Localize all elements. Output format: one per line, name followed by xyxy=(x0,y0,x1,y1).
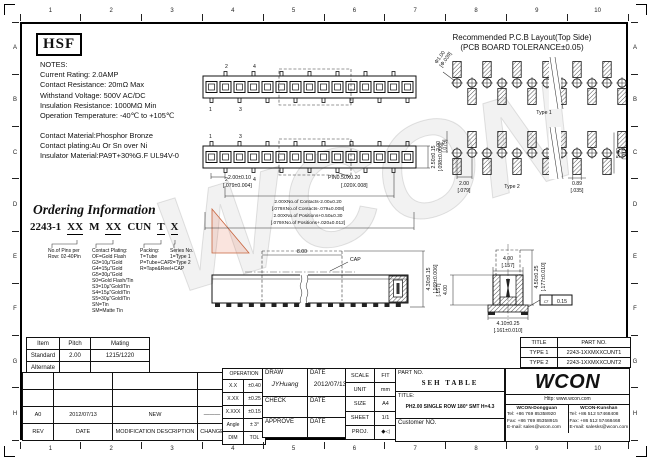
material-line: Contact plating:Au Or Sn over Ni xyxy=(40,141,179,151)
dim-contacts-inch: [.079XNo.of Contacts-.079±0.008] xyxy=(272,206,345,212)
smt-pad xyxy=(573,159,581,175)
legend-pins: No.of Pins perRow: 02-40Pin xyxy=(48,248,81,260)
code-packing: T xyxy=(157,221,164,235)
cell: X.XXX xyxy=(223,406,244,419)
pcb-layout-title: Recommended P.C.B Layout(Top Side) xyxy=(412,33,632,43)
smt-foot xyxy=(294,303,299,307)
dim-end-width-inch: [.157] xyxy=(502,263,516,269)
type1-label: Type 1 xyxy=(536,110,552,116)
ruler-tick xyxy=(202,14,203,21)
ruler-tick xyxy=(628,442,629,449)
legend-plating: Contact Plating:OF=Gold FlashG3=10µ"Gold… xyxy=(92,248,133,314)
ruler-col-label: 4 xyxy=(202,446,263,452)
ruler-col-label: 8 xyxy=(446,446,507,452)
approve-label: APPROVE xyxy=(263,418,308,438)
ruler-tick xyxy=(631,335,638,336)
corner-mark xyxy=(636,446,647,457)
smt-pad xyxy=(588,132,596,148)
dim-side-height: 4.30±0.15 xyxy=(426,267,432,290)
solder-pin xyxy=(238,142,241,147)
contact xyxy=(234,152,245,163)
signature-block: DRAW JYHuang DATE 2012/07/13 CHECK DATE … xyxy=(262,368,353,438)
contact xyxy=(402,82,413,93)
ruler-tick xyxy=(12,178,19,179)
dim-hpitch-inch: [.079] xyxy=(458,188,472,194)
ruler-row-label: D xyxy=(11,179,19,231)
ordering-legend-line: SM=Matte Tin xyxy=(92,308,133,314)
ruler-col-label: 2 xyxy=(81,446,142,452)
dim-pitch-inch: [.079±0.004] xyxy=(223,183,252,189)
smt-pad xyxy=(588,89,596,105)
ruler-tick xyxy=(567,14,568,21)
ruler-col-label: 4 xyxy=(202,8,263,14)
smt-pad xyxy=(498,89,506,105)
solder-pin xyxy=(252,72,255,77)
cell: PROJ. xyxy=(346,425,375,439)
code-m: M xyxy=(89,221,99,235)
solder-pin xyxy=(210,142,213,147)
ruler-row-label: B xyxy=(631,74,639,126)
contact xyxy=(248,152,259,163)
contact xyxy=(304,152,315,163)
pin-label: 3 xyxy=(239,107,242,113)
contact xyxy=(304,82,315,93)
ruler-tick xyxy=(12,335,19,336)
flatness-value: 0.15 xyxy=(557,299,567,305)
contact xyxy=(388,152,399,163)
smt-pad xyxy=(483,62,491,78)
cell: mm xyxy=(375,383,397,397)
ruler-row-label: G xyxy=(11,336,19,388)
ruler-row-label: H xyxy=(11,388,19,440)
ruler-col-label: 5 xyxy=(263,8,324,14)
contact xyxy=(220,152,231,163)
dim-vpitch-inch: [.079] xyxy=(443,139,449,153)
contact xyxy=(276,82,287,93)
revision-table: A0 2012/07/13 NEW ——— REV DATE MODIFICAT… xyxy=(22,372,227,441)
contact xyxy=(276,152,287,163)
ruler-row-label: A xyxy=(631,22,639,74)
dim-positions: 2.00XNo.of Positions+0.50±0.30 xyxy=(274,213,343,219)
smt-foot xyxy=(339,303,344,307)
ruler-tick xyxy=(324,14,325,21)
contact xyxy=(346,82,357,93)
contact xyxy=(402,152,413,163)
ordering-legend-line: R=Tape&Reel+CAP xyxy=(140,266,184,272)
ruler-tick xyxy=(631,74,638,75)
ruler-col-label: 5 xyxy=(263,446,324,452)
material-line: Contact Material:Phosphor Bronze xyxy=(40,131,179,141)
smt-foot xyxy=(396,303,401,307)
cell: A4 xyxy=(375,397,397,411)
rev-desc: NEW xyxy=(113,407,198,424)
contact xyxy=(388,82,399,93)
ruler-row-label: C xyxy=(631,127,639,179)
contact xyxy=(374,152,385,163)
dim-pin-size-inch: [.020X.008] xyxy=(341,183,368,189)
solder-pin xyxy=(308,72,311,77)
contact xyxy=(332,82,343,93)
cell: DIM xyxy=(223,432,244,445)
dim-body-height: 4.00 xyxy=(443,285,449,295)
dim-end-width: 4.00 xyxy=(503,256,513,262)
cell: 1/1 xyxy=(375,411,397,425)
cell: 1215/1220 xyxy=(91,350,150,362)
smt-foot xyxy=(215,303,220,307)
table-row: TYPE 1 2243-1XXMXXCUNT1 xyxy=(521,348,631,358)
table-row: Standard 2.00 1215/1220 xyxy=(27,350,150,362)
ruler-col-label: 1 xyxy=(20,8,81,14)
dim-end-height-inch: [.177±0.010] xyxy=(541,262,547,291)
ruler-col-label: 7 xyxy=(385,446,446,452)
notes-block: NOTES: Current Rating: 2.0AMPContact Res… xyxy=(40,60,174,121)
smt-foot xyxy=(249,303,254,307)
company-url: Http: www.wcon.com xyxy=(506,394,629,405)
ruler-tick xyxy=(384,14,385,21)
col-header: REV xyxy=(23,424,54,441)
cell: X.X xyxy=(223,380,244,393)
smt-pad xyxy=(453,62,461,78)
contact xyxy=(374,82,385,93)
ruler-row-label: A xyxy=(11,22,19,74)
part-number: 2243-1XXMXXCUNT2 xyxy=(558,358,631,368)
ruler-row-label: B xyxy=(11,74,19,126)
ruler-tick xyxy=(141,14,142,21)
projection-symbol: ◆◁ xyxy=(375,425,397,439)
ruler-tick xyxy=(20,442,21,449)
pin-label: 1 xyxy=(209,134,212,140)
flatness-symbol-icon: ▱ xyxy=(544,299,549,305)
smt-foot xyxy=(283,303,288,307)
smt-pad xyxy=(468,132,476,148)
rev-date: 2012/07/13 xyxy=(54,407,113,424)
date-label: DATE xyxy=(310,370,326,376)
ruler-tick xyxy=(631,178,638,179)
smt-pad xyxy=(603,62,611,78)
materials-block: Contact Material:Phosphor BronzeContact … xyxy=(40,131,179,162)
ruler-col-label: 9 xyxy=(506,446,567,452)
col-header: Mating xyxy=(91,338,150,350)
draw-label: DRAW xyxy=(265,370,283,376)
customer-no-label: Customer NO. xyxy=(398,420,436,426)
ruler-tick xyxy=(263,14,264,21)
contact xyxy=(234,82,245,93)
span-dim: 5.40 [.212] xyxy=(616,146,629,160)
contact xyxy=(346,152,357,163)
ruler-col-label: 10 xyxy=(567,8,628,14)
ordering-code: 2243-1 XX M XX CUN T X xyxy=(30,221,178,235)
contact xyxy=(206,152,217,163)
dim-pad-width: 0.89 xyxy=(572,181,582,187)
ordering-leader-lines xyxy=(52,240,175,248)
part-no-label: PART NO. xyxy=(398,370,423,376)
code-plating: XX xyxy=(105,221,121,235)
part-number: 2243-1XXMXXCUNT1 xyxy=(558,348,631,358)
smt-foot xyxy=(351,303,356,307)
smt-pad xyxy=(573,62,581,78)
ruler-tick xyxy=(80,442,81,449)
ruler-tick xyxy=(12,440,19,441)
solder-pin xyxy=(266,98,269,103)
smt-pad xyxy=(498,132,506,148)
tolerance-header: OPERATION xyxy=(223,369,266,380)
contact xyxy=(290,82,301,93)
ruler-tick xyxy=(384,442,385,449)
cell: SHEET xyxy=(346,411,375,425)
notes-line: Contact Resistance: 20mΩ Max xyxy=(40,80,174,90)
cell: SIZE xyxy=(346,397,375,411)
ruler-col-label: 6 xyxy=(324,8,385,14)
ruler-col-label: 6 xyxy=(324,446,385,452)
solder-pin xyxy=(322,98,325,103)
cell: TYPE 1 xyxy=(521,348,558,358)
ruler-tick xyxy=(12,22,19,23)
pin-label: 2 xyxy=(225,64,228,70)
solder-pin xyxy=(280,72,283,77)
pcb-layout-subtitle: (PCB BOARD TOLERANCE±0.05) xyxy=(412,43,632,53)
pin-label: 1 xyxy=(209,107,212,113)
office-email: E-mail: sales@wcon.com xyxy=(507,425,567,431)
ordering-legend-line: 2=Type 2 xyxy=(170,260,193,266)
dim-pin-size: PIN0.50X0.20 xyxy=(328,175,360,181)
dim-pad-width-inch: [.035] xyxy=(571,188,585,194)
notes-line: Current Rating: 2.0AMP xyxy=(40,70,174,80)
dim-hpitch: 2.00 xyxy=(459,181,469,187)
corner-mark xyxy=(4,446,15,457)
dim-positions-inch: [.079XNo.of Positions+.020±0.012] xyxy=(271,220,345,226)
material-line: Insulator Material:PA9T+30%G.F UL94V-0 xyxy=(40,151,179,161)
smt-pad xyxy=(603,159,611,175)
title-label: TITLE: xyxy=(398,393,415,399)
smt-foot xyxy=(328,303,333,307)
dim-cap-length: 8.00 xyxy=(297,249,307,255)
office-dongguan: WCON-Dongguan Tel: +86 769 85358920 Fax:… xyxy=(506,405,568,433)
smt-foot xyxy=(272,303,277,307)
draw-name: JYHuang xyxy=(265,381,305,388)
ruler-tick xyxy=(631,126,638,127)
company-block: WCON Http: www.wcon.com WCON-Dongguan Te… xyxy=(505,368,630,442)
ruler-col-label: 1 xyxy=(20,446,81,452)
type2-label: Type 2 xyxy=(504,184,520,190)
dim-base: 4.10±0.25 xyxy=(496,321,519,327)
part-title-block: PART NO. SEH TABLE TITLE: PH2.00 SINGLE … xyxy=(395,368,505,442)
ruler-tick xyxy=(12,126,19,127)
solder-pin xyxy=(392,72,395,77)
smt-foot xyxy=(317,303,322,307)
draw-cell: DRAW JYHuang xyxy=(263,369,308,397)
ruler-tick xyxy=(631,22,638,23)
cell: SCALE xyxy=(346,369,375,383)
ruler-tick xyxy=(506,442,507,449)
contact xyxy=(332,152,343,163)
revision-row: A0 2012/07/13 NEW ——— xyxy=(23,407,227,424)
drawing-sheet: WCON 1 3 2 4 1 3 2 4 xyxy=(0,0,650,460)
hsf-logo: HSF xyxy=(36,33,82,56)
ruler-col-label: 2 xyxy=(81,8,142,14)
cell: X.XX xyxy=(223,393,244,406)
dim-span-inch: [.212] xyxy=(623,146,629,160)
ruler-tick xyxy=(20,14,21,21)
dim-pitch: 2.00±0.10 xyxy=(228,175,251,181)
solder-pin xyxy=(350,98,353,103)
cell: Angle xyxy=(223,419,244,432)
smt-foot xyxy=(385,303,390,307)
dim-vpitch: 2.00 xyxy=(436,141,442,151)
solder-pin xyxy=(294,98,297,103)
type-table: TITLE PART NO. TYPE 1 2243-1XXMXXCUNT1 T… xyxy=(520,337,631,368)
wcon-logo: WCON xyxy=(506,369,629,394)
dim-base-inch: [.161±0.010] xyxy=(494,328,523,334)
ordering-legend-line: Row: 02-40Pin xyxy=(48,254,81,260)
revision-header-row: REV DATE MODIFICATION DESCRIPTION CHANGE xyxy=(23,424,227,441)
contact xyxy=(220,82,231,93)
contact xyxy=(206,82,217,93)
contact xyxy=(360,152,371,163)
contact xyxy=(290,152,301,163)
smt-foot xyxy=(260,303,265,307)
ruler-tick xyxy=(202,442,203,449)
dim-contacts: 2.00XNo.of Contacts-2.00±0.20 xyxy=(274,199,341,205)
table-row: TYPE 2 2243-1XXMXXCUNT2 xyxy=(521,358,631,368)
connector-end-view: 4.00 [.157] 4.50±0.25 [.177±0.010] 4.00 … xyxy=(436,244,572,334)
ruler-tick xyxy=(80,14,81,21)
ruler-tick xyxy=(567,442,568,449)
mating-table: Item Pitch Mating Standard 2.00 1215/122… xyxy=(26,337,150,374)
solder-pin xyxy=(336,72,339,77)
col-header: Pitch xyxy=(60,338,91,350)
contact xyxy=(318,152,329,163)
contact xyxy=(262,82,273,93)
contact-pin xyxy=(506,279,510,297)
ruler-row-label: H xyxy=(631,388,639,440)
col-header: TITLE xyxy=(521,338,558,348)
notes-line: Operation Temperature: -40℃ to +105℃ xyxy=(40,111,174,121)
notes-line: Insulation Resistance: 1000MΩ Min xyxy=(40,101,174,111)
ruler-tick xyxy=(12,283,19,284)
rev-id: A0 xyxy=(23,407,54,424)
ruler-row-label: E xyxy=(631,231,639,283)
ruler-tick xyxy=(324,442,325,449)
check-label: CHECK xyxy=(263,397,308,418)
vpitch-dim: 2.00 [.079] xyxy=(436,139,449,153)
office-kunshan: WCON-Kunshan Tel: +86 512 57468408 Fax: … xyxy=(568,405,630,433)
pin-label: 4 xyxy=(253,177,256,183)
code-cun: CUN xyxy=(127,221,151,235)
smt-pad xyxy=(528,132,536,148)
ruler-tick xyxy=(141,442,142,449)
ruler-row-label: C xyxy=(11,127,19,179)
code-pins: XX xyxy=(67,221,83,235)
corner-mark xyxy=(636,4,647,15)
smt-foot xyxy=(305,303,310,307)
col-header: MODIFICATION DESCRIPTION xyxy=(113,424,198,441)
ruler-tick xyxy=(631,440,638,441)
ruler-tick xyxy=(12,74,19,75)
code-type: X xyxy=(171,221,179,235)
col-header: Item xyxy=(27,338,60,350)
smt-pad xyxy=(468,89,476,105)
smt-pad xyxy=(618,132,626,148)
pin-label: 4 xyxy=(253,64,256,70)
cell: 2.00 xyxy=(60,350,91,362)
tolerance-table: OPERATION X.X ±0.40 X.XX ±0.25 X.XXX ±0.… xyxy=(222,368,266,445)
office-email: E-mail: salesks@wcon.com xyxy=(570,425,629,431)
smt-pad xyxy=(618,89,626,105)
smt-pad xyxy=(528,89,536,105)
solder-pin xyxy=(238,98,241,103)
col-header: DATE xyxy=(54,424,113,441)
smt-foot xyxy=(373,303,378,307)
ruler-row-label: F xyxy=(11,283,19,335)
cell: TYPE 2 xyxy=(521,358,558,368)
dim-body-height-inch: [.157] xyxy=(436,283,442,297)
pcb-layout-title-block: Recommended P.C.B Layout(Top Side) (PCB … xyxy=(412,33,632,53)
dim-end-height: 4.50±0.25 xyxy=(534,265,540,288)
ruler-tick xyxy=(263,442,264,449)
smt-foot xyxy=(238,303,243,307)
cell: FIT xyxy=(375,369,397,383)
col-header: PART NO. xyxy=(558,338,631,348)
draw-date: 2012/07/13 xyxy=(310,381,350,388)
cell: UNIT xyxy=(346,383,375,397)
corner-mark xyxy=(4,4,15,15)
ruler-tick xyxy=(628,14,629,21)
ruler-tick xyxy=(445,14,446,21)
solder-pin xyxy=(378,98,381,103)
contact xyxy=(262,152,273,163)
ruler-col-label: 3 xyxy=(142,8,203,14)
dim-span: 5.40 xyxy=(616,148,622,158)
smt-foot xyxy=(226,303,231,307)
smt-pad xyxy=(513,62,521,78)
scale-block: SCALE FIT UNIT mm SIZE A4 SHEET 1/1 PROJ… xyxy=(345,368,397,440)
solder-pin xyxy=(210,98,213,103)
code-series: 2243-1 xyxy=(30,221,61,235)
ruler-col-label: 10 xyxy=(567,446,628,452)
notes-heading: NOTES: xyxy=(40,60,174,70)
ruler-col-label: 7 xyxy=(385,8,446,14)
ruler-tick xyxy=(445,442,446,449)
ruler-tick xyxy=(12,387,19,388)
ordering-title: Ordering Information xyxy=(33,202,156,218)
cap-label: CAP xyxy=(350,257,361,263)
ruler-row-label: G xyxy=(631,336,639,388)
ruler-col-label: 3 xyxy=(142,446,203,452)
ruler-tick xyxy=(631,283,638,284)
smt-pad xyxy=(483,159,491,175)
ruler-row-label: F xyxy=(631,283,639,335)
ruler-row-label: E xyxy=(11,231,19,283)
ruler-row-label: D xyxy=(631,179,639,231)
contact xyxy=(318,82,329,93)
contact xyxy=(360,82,371,93)
ruler-col-label: 9 xyxy=(506,8,567,14)
ruler-tick xyxy=(506,14,507,21)
ruler-tick xyxy=(12,231,19,232)
cell: Standard xyxy=(27,350,60,362)
solder-pin xyxy=(364,72,367,77)
ruler-tick xyxy=(631,231,638,232)
notes-line: Withstand Voltage: 500V AC/DC xyxy=(40,91,174,101)
ruler-tick xyxy=(631,387,638,388)
pin-label: 3 xyxy=(239,134,242,140)
legend-series: Series No.1=Type 12=Type 2 xyxy=(170,248,193,266)
contact xyxy=(248,82,259,93)
solder-pin xyxy=(224,72,227,77)
smt-foot xyxy=(362,303,367,307)
smt-pad xyxy=(513,159,521,175)
ruler-col-label: 8 xyxy=(446,8,507,14)
